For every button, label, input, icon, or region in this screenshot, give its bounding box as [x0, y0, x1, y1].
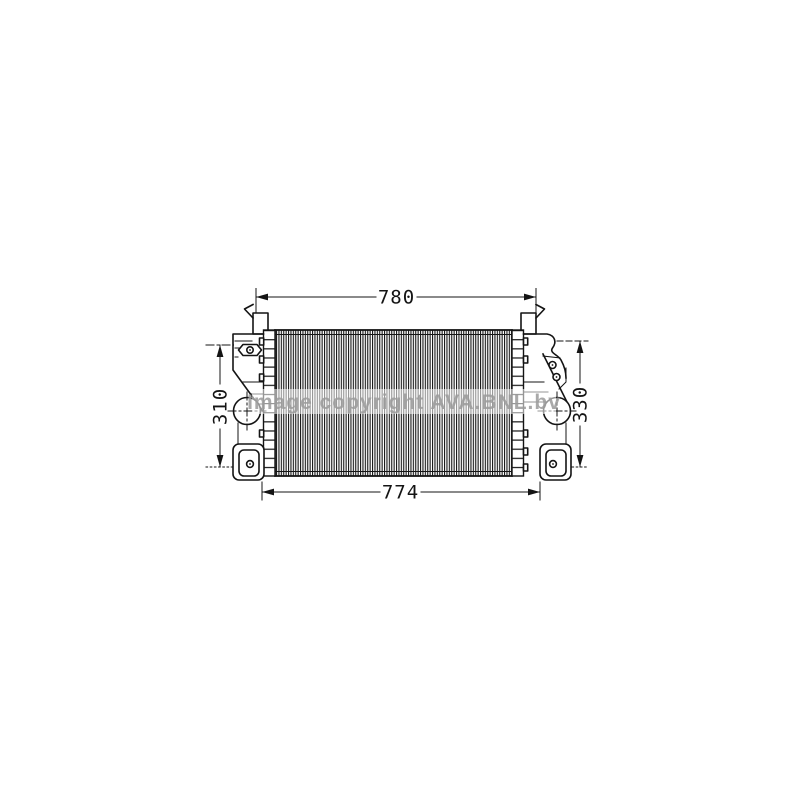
dimension-bottom-width: 774 [262, 482, 540, 504]
technical-drawing-canvas: 780 774 310 330 Image copyright AVA.BNL.… [0, 0, 800, 800]
right-bracket-hole-center [552, 463, 554, 465]
bottom-width-label: 774 [382, 482, 419, 504]
arrow-right-icon [528, 489, 540, 496]
right-tab [524, 338, 528, 345]
arrow-down-icon [577, 455, 584, 467]
arrow-down-icon [217, 455, 224, 467]
right-lug-hole-lower-center [556, 376, 558, 378]
intercooler-drawing: 780 774 310 330 Image copyright AVA.BNL.… [0, 0, 800, 800]
arrow-left-icon [256, 294, 268, 301]
dimension-top-width: 780 [256, 287, 536, 313]
watermark-text: Image copyright AVA.BNL.bv [247, 391, 561, 414]
left-tab [260, 430, 264, 437]
left-tab [260, 374, 264, 381]
right-tab [524, 356, 528, 363]
dimension-left-height: 310 [206, 345, 234, 467]
arrow-up-icon [577, 341, 584, 353]
left-tab [260, 338, 264, 345]
left-tab [260, 356, 264, 363]
right-tab [524, 430, 528, 437]
arrow-up-icon [217, 345, 224, 357]
arrow-right-icon [524, 294, 536, 301]
left-height-label: 310 [210, 388, 232, 425]
right-lug-hole-upper-center [552, 364, 554, 366]
left-mount-lug-hole-center [249, 349, 251, 351]
right-tab [524, 448, 528, 455]
arrow-left-icon [262, 489, 274, 496]
left-bracket-hole-center [249, 463, 251, 465]
right-height-label: 330 [570, 386, 592, 423]
left-pin-flag [245, 305, 254, 319]
top-width-label: 780 [378, 287, 415, 309]
right-pin-flag [536, 305, 545, 319]
right-tab [524, 464, 528, 471]
watermark: Image copyright AVA.BNL.bv [247, 389, 561, 414]
